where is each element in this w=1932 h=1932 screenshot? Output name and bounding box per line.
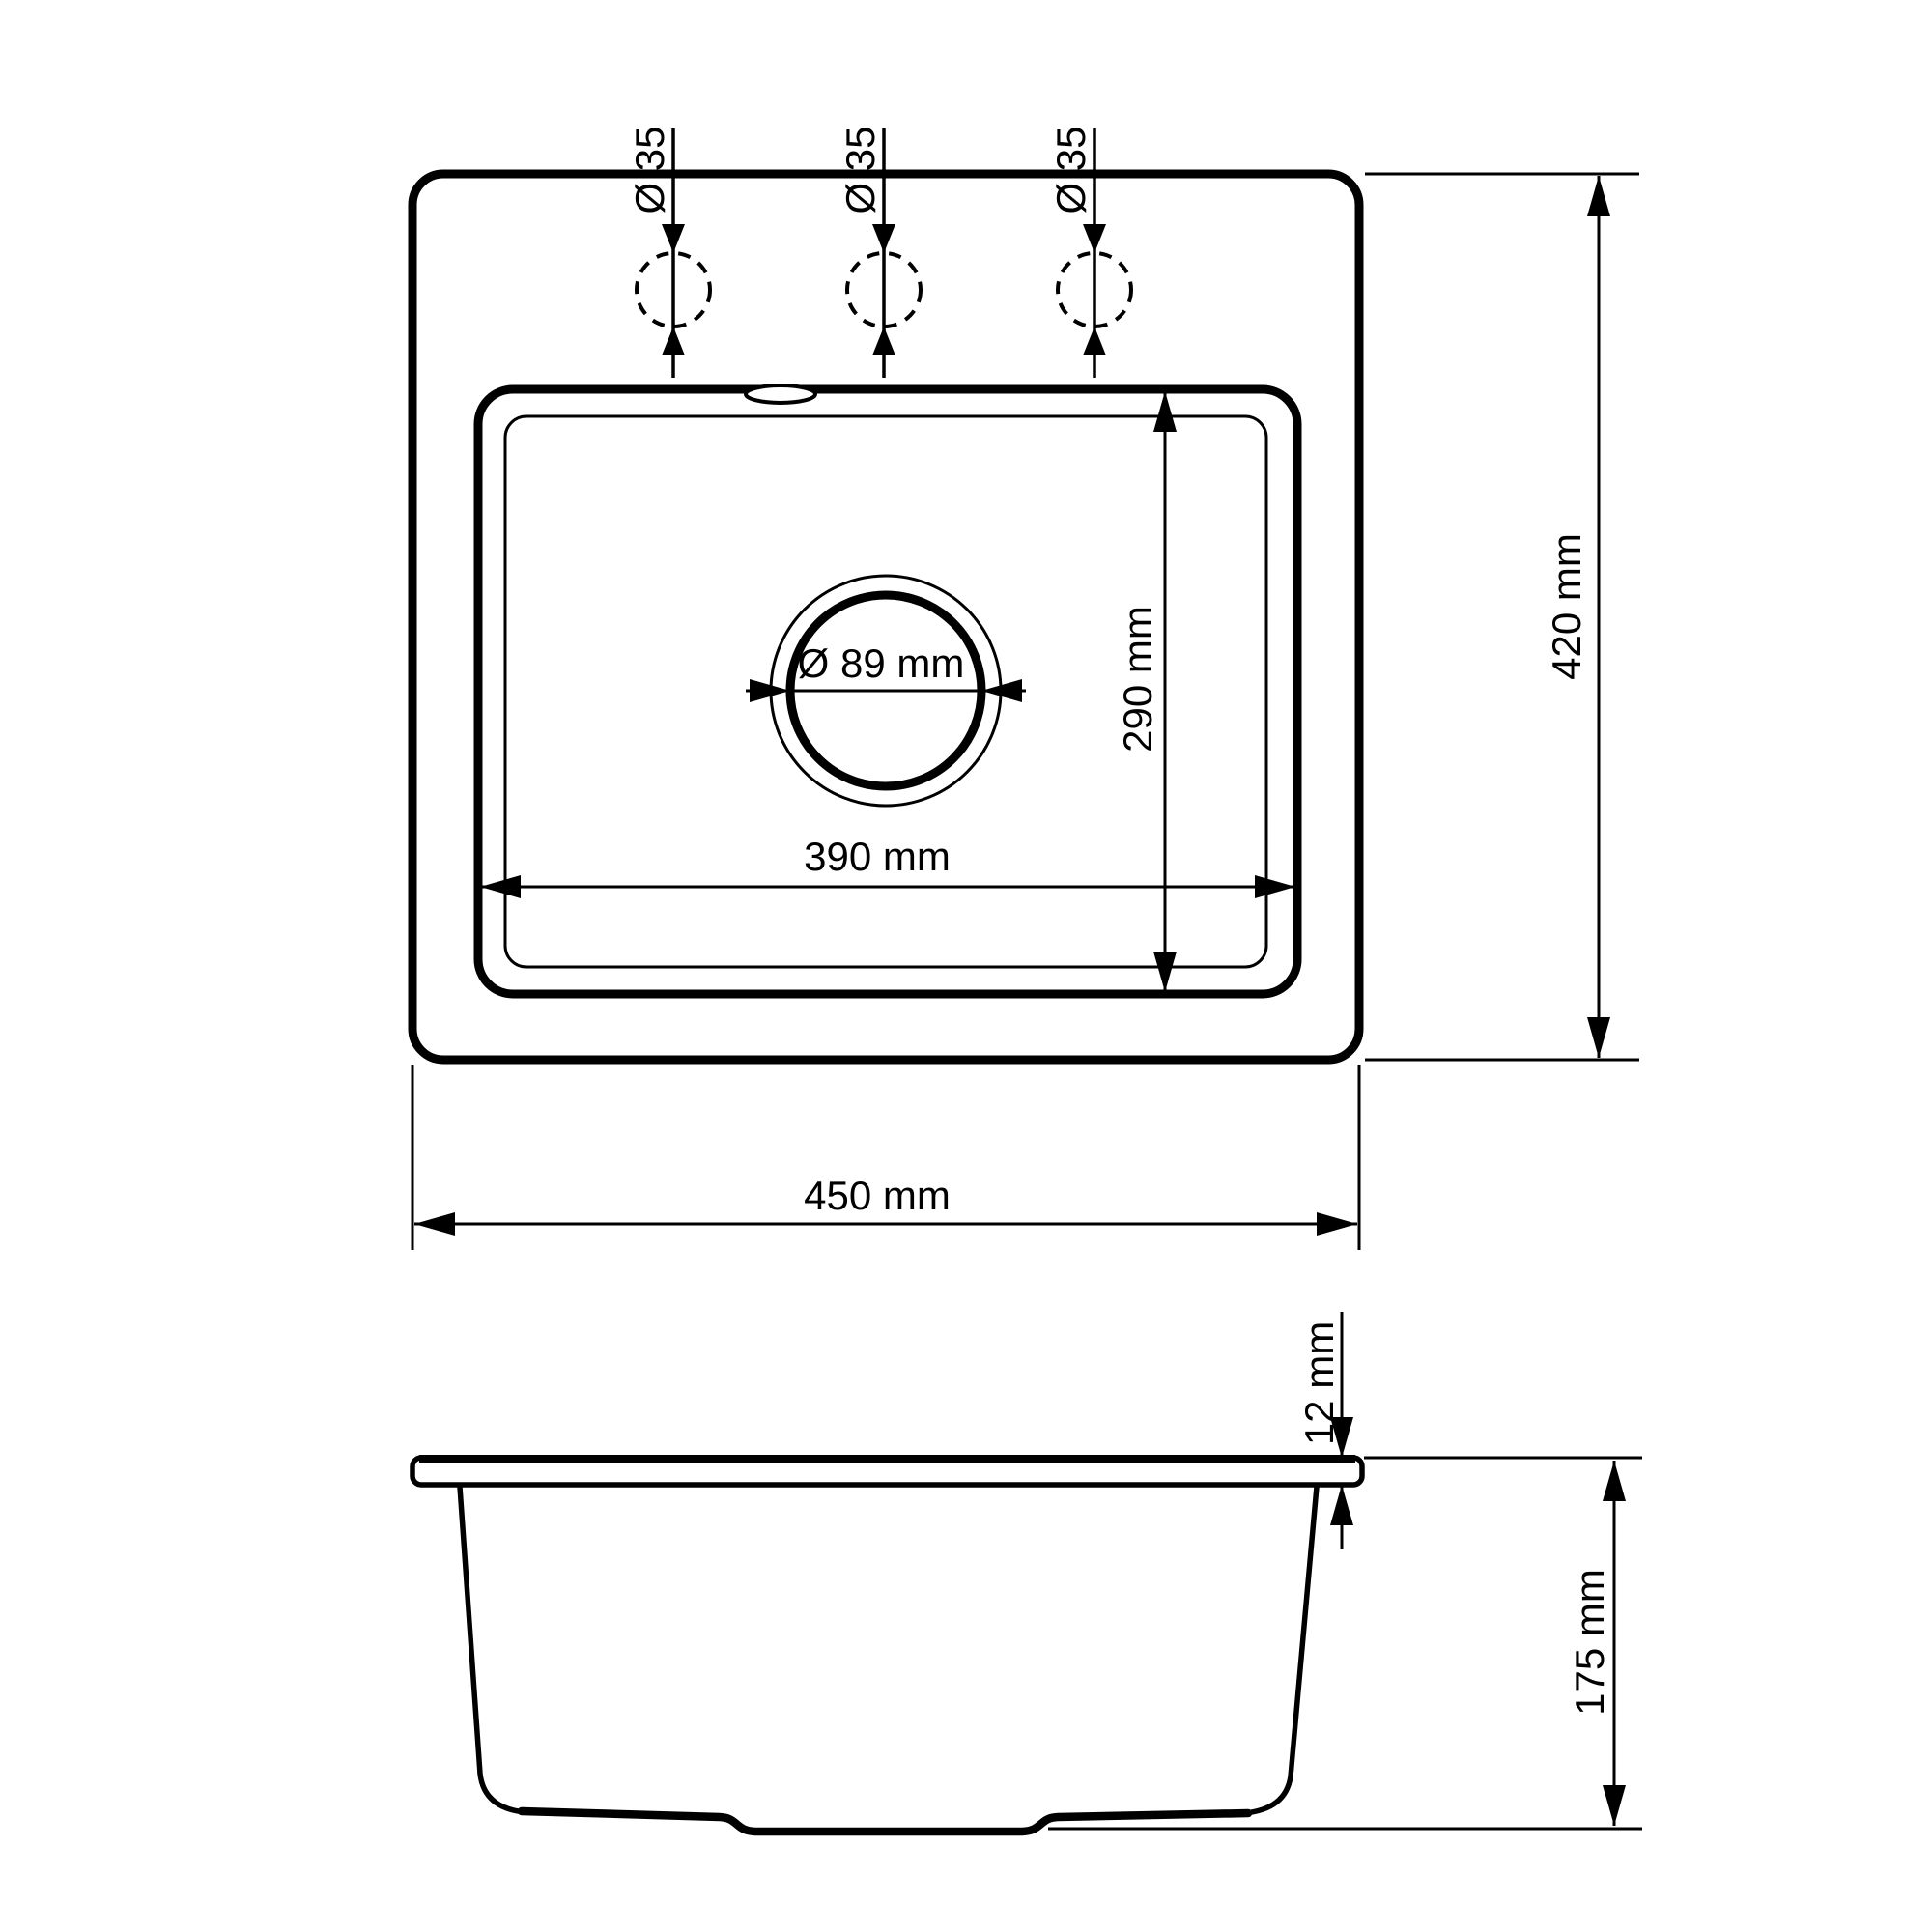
arrowhead <box>1587 176 1610 216</box>
faucet-hole-label: Ø 35 <box>627 126 672 213</box>
basin-depth-label: 290 mm <box>1115 606 1160 753</box>
overall-depth-label: 420 mm <box>1544 533 1589 680</box>
sink-outer-outline <box>412 174 1359 1060</box>
arrowhead <box>1083 224 1106 253</box>
bowl-profile <box>460 1487 1317 1832</box>
arrowhead <box>1083 327 1106 355</box>
arrowhead <box>480 875 521 898</box>
rim-thickness-label: 12 mm <box>1296 1321 1342 1445</box>
arrowhead <box>662 327 685 355</box>
dim-rim-thickness: 12 mm <box>1296 1312 1353 1549</box>
faucet-hole-label: Ø 35 <box>1048 126 1094 213</box>
arrowhead <box>1153 391 1177 432</box>
section-view: 12 mm 175 mm <box>412 1312 1642 1832</box>
faucet-hole-3: Ø 35 <box>1048 126 1131 378</box>
arrowhead <box>1603 1785 1626 1826</box>
overflow-slot <box>746 385 815 403</box>
arrowhead <box>1603 1461 1626 1501</box>
arrowhead <box>1330 1485 1353 1525</box>
dim-basin-depth: 290 mm <box>1115 391 1177 992</box>
sink-technical-drawing: Ø 89 mm Ø 35 Ø 35 Ø 35 <box>0 0 1932 1932</box>
drawing-canvas: Ø 89 mm Ø 35 Ø 35 Ø 35 <box>0 0 1932 1932</box>
basin-width-label: 390 mm <box>804 834 951 879</box>
arrowhead <box>872 224 895 253</box>
drain: Ø 89 mm <box>746 576 1026 806</box>
arrowhead <box>414 1212 455 1236</box>
drain-diameter-label: Ø 89 mm <box>798 640 965 686</box>
arrowhead <box>662 224 685 253</box>
dim-overall-width: 450 mm <box>412 1065 1359 1250</box>
faucet-hole-1: Ø 35 <box>627 126 710 378</box>
arrowhead <box>1587 1017 1610 1058</box>
arrowhead <box>872 327 895 355</box>
overall-width-label: 450 mm <box>804 1173 951 1218</box>
arrowhead <box>1153 952 1177 992</box>
arrowhead <box>1255 875 1295 898</box>
faucet-hole-label: Ø 35 <box>838 126 883 213</box>
dim-basin-width: 390 mm <box>480 834 1295 898</box>
plan-view: Ø 89 mm Ø 35 Ø 35 Ø 35 <box>412 126 1639 1250</box>
arrowhead <box>1317 1212 1357 1236</box>
faucet-hole-2: Ø 35 <box>838 126 921 378</box>
bowl-depth-label: 175 mm <box>1567 1569 1612 1716</box>
dim-overall-depth: 420 mm <box>1365 174 1639 1060</box>
